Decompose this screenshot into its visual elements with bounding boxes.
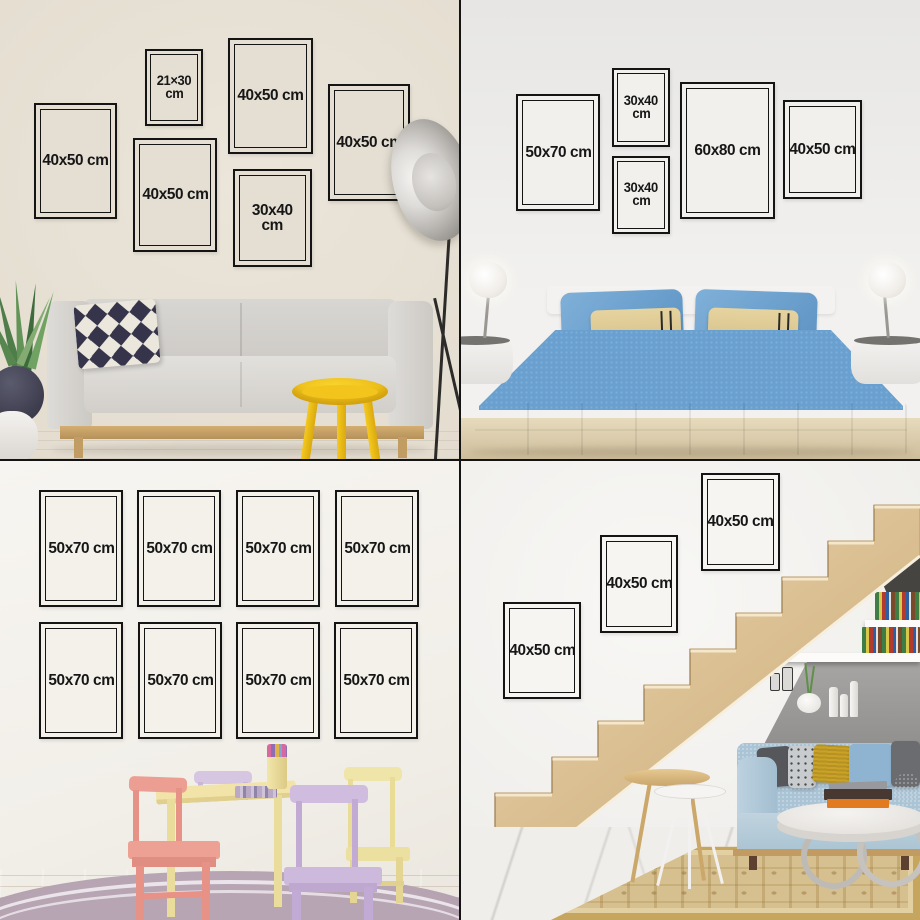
size-frame-label: 21×30cm: [150, 54, 198, 121]
chair-leg: [292, 890, 301, 920]
size-frame: 50x70 cm: [138, 622, 222, 739]
size-frame-label: 30x40cm: [239, 175, 306, 261]
size-frame: 50x70 cm: [236, 622, 320, 739]
plant-pot-white: [0, 411, 38, 459]
size-frame: 40x50 cm: [503, 602, 581, 699]
size-frame: 50x70 cm: [137, 490, 221, 607]
triangle-pattern-pillow: [73, 299, 160, 370]
dark-vase: [894, 773, 920, 803]
yellow-stool-tray: [302, 385, 378, 399]
size-frame: 40x50 cm: [228, 38, 313, 154]
white-side-table: [654, 784, 726, 799]
chair-post: [352, 799, 358, 869]
size-frame: 30x40cm: [612, 156, 670, 234]
size-frame: 50x70 cm: [236, 490, 320, 607]
size-frame-label: 60x80 cm: [686, 88, 769, 213]
sofa-leg: [749, 856, 757, 870]
size-frame: 30x40cm: [612, 68, 670, 147]
size-frame: 50x70 cm: [334, 622, 418, 739]
table-leg: [274, 795, 282, 907]
nightstand-right: [851, 336, 920, 384]
size-frame-label: 50x70 cm: [45, 496, 117, 601]
size-frame-label: 40x50 cm: [40, 109, 111, 213]
size-frame-label: 50x70 cm: [45, 628, 117, 733]
chair-leg: [364, 887, 373, 920]
bedroom-scene: 50x70 cm30x40cm30x40cm60x80 cm40x50 cm: [461, 0, 920, 459]
chair-post: [390, 777, 395, 849]
table-lamp-right: [868, 262, 906, 298]
size-frame-label: 40x50 cm: [139, 144, 211, 246]
poster-size-guide-collage: 40x50 cm21×30cm40x50 cm40x50 cm30x40cm40…: [0, 0, 920, 920]
chair-post: [296, 801, 302, 869]
staircase-scene: 40x50 cm40x50 cm40x50 cm: [461, 461, 920, 920]
potted-plant: [0, 280, 64, 380]
stool-leg: [337, 399, 346, 459]
size-frame: 40x50 cm: [600, 535, 678, 633]
size-frame-label: 50x70 cm: [341, 496, 413, 601]
size-frame: 21×30cm: [145, 49, 203, 126]
size-frame: 40x50 cm: [783, 100, 862, 199]
bed-base: [475, 403, 907, 455]
size-frame-label: 30x40cm: [617, 73, 665, 142]
chair-post: [176, 788, 182, 844]
book: [827, 799, 889, 808]
size-frame-label: 50x70 cm: [143, 496, 215, 601]
pencil-cup: [267, 755, 287, 789]
size-frame-label: 40x50 cm: [606, 541, 672, 627]
size-frame: 40x50 cm: [133, 138, 217, 252]
size-frame-label: 50x70 cm: [340, 628, 412, 733]
living-room-scene: 40x50 cm21×30cm40x50 cm40x50 cm30x40cm40…: [0, 0, 459, 459]
size-frame: 60x80 cm: [680, 82, 775, 219]
size-frame: 50x70 cm: [39, 622, 123, 739]
chair-post: [133, 790, 139, 846]
size-frame-label: 50x70 cm: [242, 496, 314, 601]
size-frame: 30x40cm: [233, 169, 312, 267]
size-frame: 50x70 cm: [516, 94, 600, 211]
pencil-tips: [267, 744, 287, 757]
size-frame-label: 50x70 cm: [144, 628, 216, 733]
size-frame: 50x70 cm: [335, 490, 419, 607]
size-frame-label: 50x70 cm: [522, 100, 594, 205]
nightstand-left: [461, 336, 513, 384]
light-blue-pillow: [849, 744, 893, 786]
sofa-leg: [398, 437, 407, 458]
size-frame: 50x70 cm: [39, 490, 123, 607]
mustard-pillow: [812, 744, 852, 784]
table-lamp-left: [469, 262, 507, 298]
chair-leg: [396, 857, 403, 903]
side-table-leg: [688, 799, 691, 889]
size-frame-label: 50x70 cm: [242, 628, 314, 733]
size-frame: 40x50 cm: [701, 473, 780, 571]
size-frame-label: 40x50 cm: [789, 106, 856, 193]
size-frame-label: 40x50 cm: [509, 608, 575, 693]
size-frame-label: 40x50 cm: [707, 479, 774, 565]
sofa-leg: [74, 437, 83, 458]
size-frame-label: 40x50 cm: [234, 44, 307, 148]
kids-room-scene: 50x70 cm50x70 cm50x70 cm50x70 cm50x70 cm…: [0, 461, 459, 920]
size-frame: 40x50 cm: [34, 103, 117, 219]
size-frame-label: 30x40cm: [617, 161, 665, 229]
